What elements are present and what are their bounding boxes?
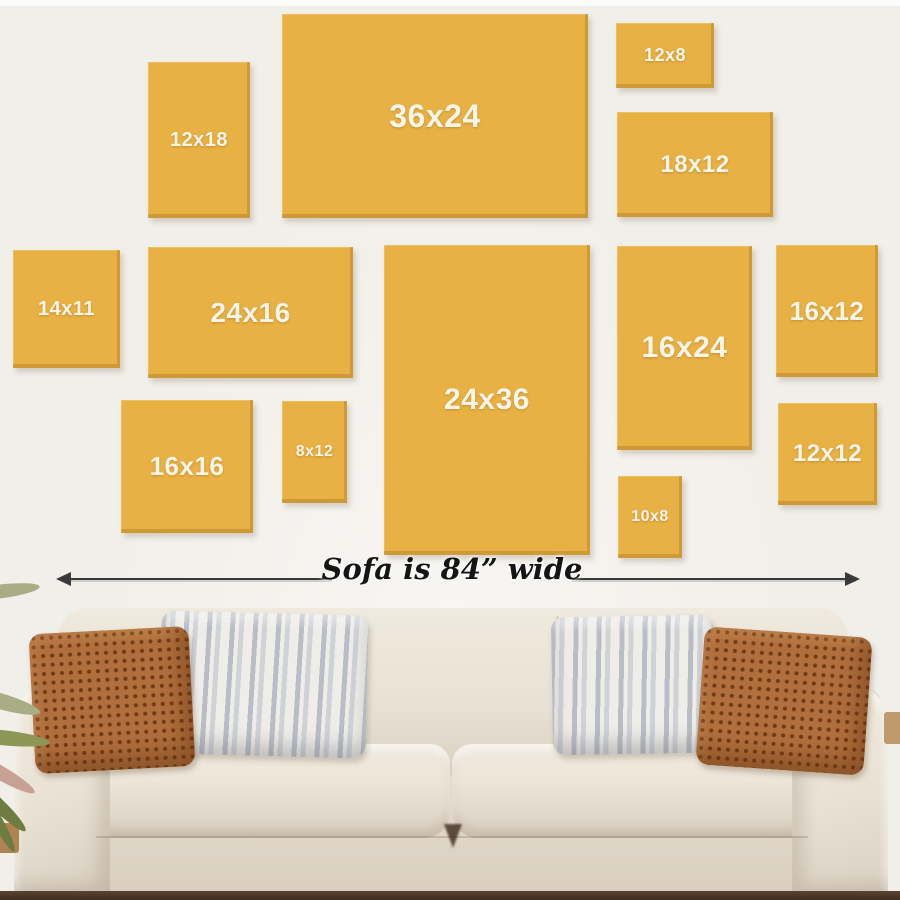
sofa-width-label: Sofa is 84” wide xyxy=(322,552,583,586)
wall-top-band xyxy=(0,0,900,6)
measure-line-left xyxy=(64,578,332,580)
rust-pillow-right xyxy=(695,626,872,775)
canvas-size-label: 16x16 xyxy=(150,451,225,482)
canvas-size-label: 36x24 xyxy=(389,98,480,135)
canvas-16x16: 16x16 xyxy=(121,400,253,533)
canvas-16x12: 16x12 xyxy=(776,245,878,377)
canvas-10x8: 10x8 xyxy=(618,476,682,558)
canvas-size-label: 8x12 xyxy=(296,443,334,461)
canvas-size-label: 24x36 xyxy=(444,383,530,417)
canvas-12x18: 12x18 xyxy=(148,62,250,218)
arrow-right-icon xyxy=(845,572,860,586)
rust-pillow-left xyxy=(28,626,195,774)
seat-center-notch xyxy=(444,824,462,848)
canvas-18x12: 18x12 xyxy=(617,112,773,217)
canvas-12x12: 12x12 xyxy=(778,403,877,505)
measure-line-right xyxy=(572,578,856,580)
canvas-size-label: 18x12 xyxy=(660,151,729,179)
canvas-24x36: 24x36 xyxy=(384,245,590,555)
canvas-size-label: 24x16 xyxy=(210,297,290,329)
canvas-16x24: 16x24 xyxy=(617,246,752,450)
canvas-size-label: 12x12 xyxy=(793,440,862,468)
arrow-left-icon xyxy=(56,572,71,586)
canvas-size-label: 14x11 xyxy=(38,298,95,321)
canvas-size-label: 12x8 xyxy=(644,45,686,66)
canvas-size-label: 10x8 xyxy=(631,508,669,526)
canvas-24x16: 24x16 xyxy=(148,247,353,378)
canvas-36x24: 36x24 xyxy=(282,14,588,218)
canvas-8x12: 8x12 xyxy=(282,401,347,503)
canvas-12x8: 12x8 xyxy=(616,23,714,88)
wood-table-right xyxy=(884,712,900,744)
plant-leaf-icon xyxy=(0,580,41,605)
canvas-size-label: 16x12 xyxy=(790,296,865,327)
canvas-14x11: 14x11 xyxy=(13,250,120,368)
canvas-size-label: 12x18 xyxy=(170,129,228,152)
canvas-size-guide-scene: 12x18 36x24 12x8 18x12 14x11 24x16 24x36… xyxy=(0,0,900,900)
striped-pillow-right xyxy=(551,615,715,756)
canvas-size-label: 16x24 xyxy=(642,331,728,365)
floor-strip xyxy=(0,891,900,900)
